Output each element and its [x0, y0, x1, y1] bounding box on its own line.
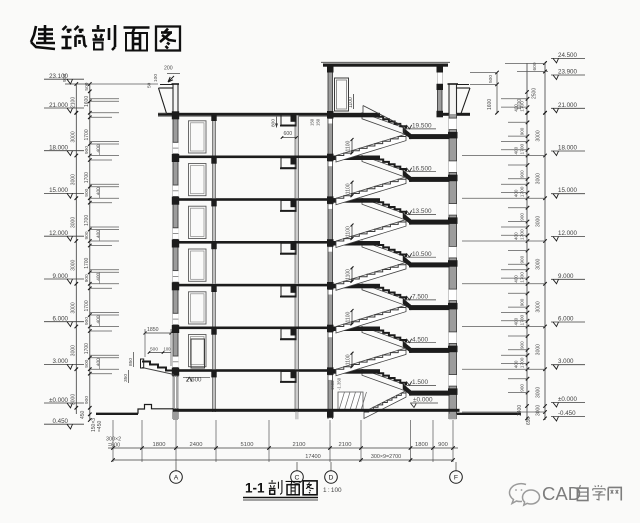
svg-text:400: 400 [514, 275, 519, 283]
svg-text:900: 900 [84, 396, 90, 404]
svg-text:-0.450: -0.450 [558, 410, 576, 417]
svg-text:3000: 3000 [536, 387, 542, 398]
svg-text:400: 400 [96, 187, 102, 195]
svg-text:CAD: CAD [542, 483, 581, 504]
svg-text:150: 150 [316, 118, 321, 126]
svg-text:900: 900 [520, 384, 525, 392]
svg-text:600: 600 [284, 131, 293, 137]
svg-text:400: 400 [514, 104, 519, 112]
svg-text:2400: 2400 [190, 442, 203, 448]
svg-text:3000: 3000 [71, 259, 77, 270]
svg-text:1100: 1100 [348, 97, 354, 108]
svg-text:400: 400 [96, 315, 102, 323]
svg-text:1700: 1700 [520, 272, 526, 283]
svg-text:1700: 1700 [520, 229, 526, 240]
svg-text:1700: 1700 [84, 343, 90, 354]
svg-text:1500: 1500 [330, 380, 335, 390]
svg-text:900: 900 [520, 255, 525, 263]
svg-text:400: 400 [514, 317, 519, 325]
svg-text:1700: 1700 [520, 314, 526, 325]
svg-text:650: 650 [526, 416, 532, 425]
svg-text:400: 400 [96, 272, 102, 280]
svg-text:F: F [454, 475, 458, 482]
svg-text:3000: 3000 [536, 130, 542, 141]
svg-text:400: 400 [514, 146, 519, 154]
svg-text:1700: 1700 [84, 300, 90, 311]
svg-text:1100: 1100 [346, 312, 352, 323]
svg-text:150: 150 [310, 118, 315, 126]
svg-text:3000: 3000 [536, 301, 542, 312]
svg-text:1850: 1850 [147, 327, 159, 333]
svg-text:17400: 17400 [305, 454, 321, 460]
svg-text:1100: 1100 [346, 269, 352, 280]
svg-text:400: 400 [514, 232, 519, 240]
svg-text:3000: 3000 [536, 216, 542, 227]
svg-text:1100: 1100 [346, 226, 352, 237]
svg-text:400: 400 [514, 360, 519, 368]
svg-text:1700: 1700 [520, 186, 526, 197]
svg-text:400: 400 [96, 358, 102, 366]
svg-text:2400: 2400 [517, 405, 523, 416]
svg-text:1700: 1700 [84, 172, 90, 183]
svg-text:450: 450 [80, 410, 86, 419]
svg-text:900: 900 [438, 442, 448, 448]
svg-text:3000: 3000 [536, 344, 542, 355]
svg-text:900: 900 [520, 213, 525, 221]
svg-text:21.000: 21.000 [558, 102, 577, 109]
svg-text:1600: 1600 [487, 99, 493, 110]
svg-text:900: 900 [520, 298, 525, 306]
svg-text:3000: 3000 [536, 405, 542, 416]
svg-text:900: 900 [84, 188, 90, 196]
svg-text:1 : 100: 1 : 100 [323, 487, 342, 494]
svg-text:1800: 1800 [415, 442, 428, 448]
svg-text:850: 850 [128, 358, 134, 366]
svg-text:400: 400 [96, 144, 102, 152]
svg-text:900: 900 [520, 127, 525, 135]
svg-text:400: 400 [514, 189, 519, 197]
svg-text:A: A [174, 475, 179, 482]
svg-text:500: 500 [488, 75, 494, 83]
svg-text:1-1: 1-1 [245, 481, 265, 496]
svg-text:900: 900 [84, 317, 90, 325]
svg-text:2500: 2500 [532, 88, 538, 99]
svg-text:900: 900 [520, 341, 525, 349]
svg-text:1700: 1700 [84, 129, 90, 140]
svg-text:C: C [295, 475, 300, 482]
svg-text:3.000: 3.000 [558, 358, 574, 365]
svg-text:3000: 3000 [71, 345, 77, 356]
svg-text:100: 100 [164, 347, 172, 352]
svg-text:50: 50 [147, 82, 153, 88]
svg-text:=450: =450 [97, 421, 103, 432]
svg-text:1700: 1700 [520, 357, 526, 368]
svg-text:300×9=2700: 300×9=2700 [371, 454, 401, 460]
svg-text:D: D [329, 475, 334, 482]
svg-text:1700: 1700 [520, 101, 526, 112]
svg-text:900: 900 [84, 274, 90, 282]
svg-text:1100: 1100 [346, 183, 352, 194]
svg-text:1100: 1100 [346, 141, 352, 152]
svg-text:±0.000: ±0.000 [413, 397, 433, 404]
svg-text:1700: 1700 [84, 257, 90, 268]
svg-text:900: 900 [84, 231, 90, 239]
svg-text:350: 350 [123, 374, 129, 382]
svg-text:3000: 3000 [71, 131, 77, 142]
svg-text:5100: 5100 [241, 442, 254, 448]
svg-text:-1.350: -1.350 [337, 377, 342, 390]
svg-text:800: 800 [271, 119, 277, 127]
svg-text:3000: 3000 [536, 258, 542, 269]
svg-text:9.000: 9.000 [558, 273, 574, 280]
svg-text:24.500: 24.500 [558, 52, 577, 59]
svg-text:2100: 2100 [71, 97, 77, 108]
svg-text:200: 200 [164, 66, 173, 72]
svg-text:3000: 3000 [71, 302, 77, 313]
svg-text:900: 900 [84, 359, 90, 367]
svg-text:3000: 3000 [71, 217, 77, 228]
svg-text:12.000: 12.000 [558, 230, 577, 237]
svg-text:400: 400 [96, 230, 102, 238]
svg-text:23.900: 23.900 [558, 69, 577, 76]
svg-text:500: 500 [150, 347, 158, 353]
svg-text:500: 500 [84, 82, 90, 90]
svg-text:3000: 3000 [71, 174, 77, 185]
svg-text:1100: 1100 [346, 354, 352, 365]
svg-text:2100: 2100 [339, 442, 352, 448]
svg-text:±0.000: ±0.000 [558, 396, 577, 403]
svg-text:1700: 1700 [520, 143, 526, 154]
svg-text:18.000: 18.000 [558, 145, 577, 152]
svg-text:=600: =600 [108, 443, 120, 449]
svg-text:900: 900 [520, 170, 525, 178]
svg-text:900: 900 [84, 146, 90, 154]
svg-text:1700: 1700 [84, 215, 90, 226]
svg-text:2100: 2100 [293, 442, 306, 448]
svg-text:6.000: 6.000 [558, 316, 574, 323]
svg-text:1800: 1800 [153, 442, 166, 448]
svg-text:3000: 3000 [536, 173, 542, 184]
svg-text:15.000: 15.000 [558, 187, 577, 194]
svg-text:100: 100 [153, 74, 159, 82]
